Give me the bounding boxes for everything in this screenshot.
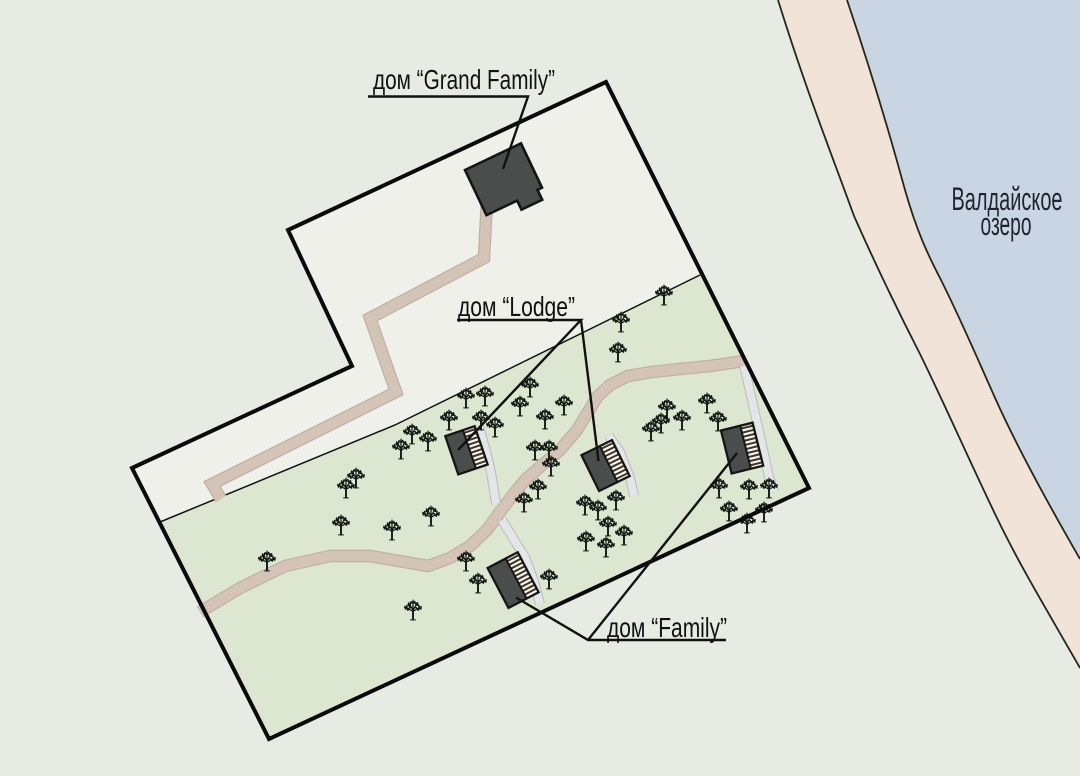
- svg-text:озеро: озеро: [981, 206, 1032, 242]
- svg-text:дом “Grand Family”: дом “Grand Family”: [373, 64, 555, 95]
- svg-text:дом “Family”: дом “Family”: [607, 612, 727, 643]
- svg-text:дом “Lodge”: дом “Lodge”: [458, 291, 575, 322]
